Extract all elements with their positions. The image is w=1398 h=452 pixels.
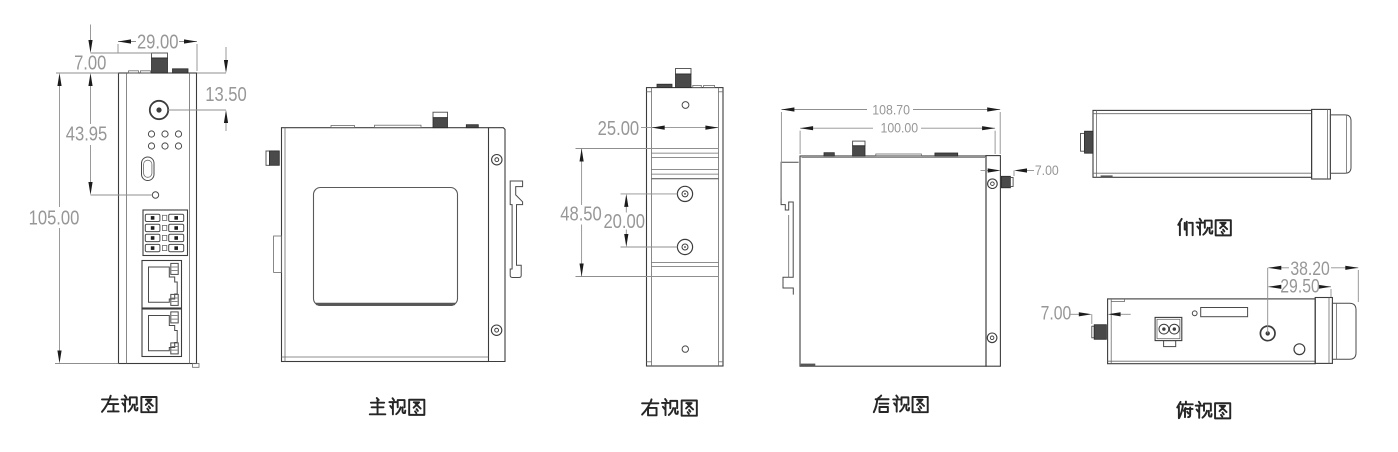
svg-text:7.00: 7.00: [74, 51, 106, 74]
svg-text:43.95: 43.95: [66, 122, 108, 145]
svg-text:13.50: 13.50: [205, 83, 247, 106]
svg-text:25.00: 25.00: [598, 116, 640, 139]
svg-text:29.50: 29.50: [1280, 275, 1320, 297]
svg-text:7.00: 7.00: [1041, 302, 1072, 324]
svg-text:108.70: 108.70: [872, 102, 910, 118]
svg-text:48.50: 48.50: [560, 202, 602, 225]
svg-text:100.00: 100.00: [880, 120, 918, 136]
svg-text:105.00: 105.00: [29, 206, 80, 229]
svg-text:7.00: 7.00: [1035, 162, 1059, 178]
svg-text:29.00: 29.00: [137, 30, 179, 53]
svg-text:20.00: 20.00: [603, 209, 645, 232]
